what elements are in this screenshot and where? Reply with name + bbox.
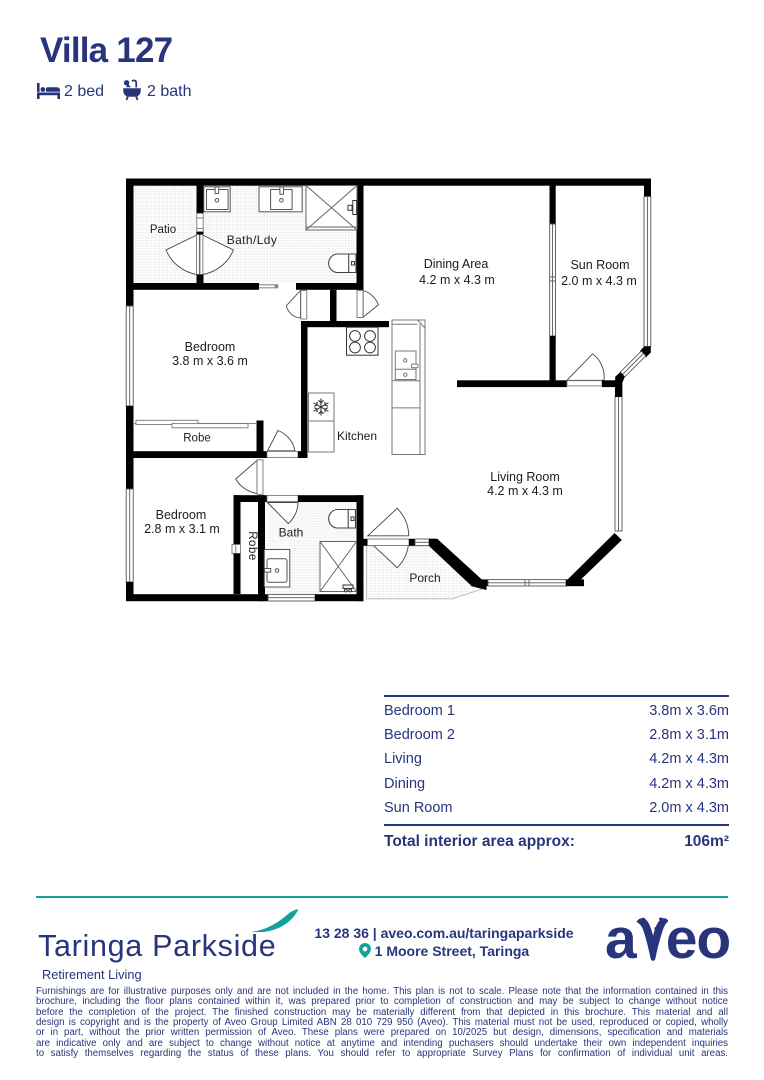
svg-text:Bedroom: Bedroom	[185, 340, 236, 354]
svg-text:Bath/Ldy: Bath/Ldy	[227, 233, 278, 247]
svg-text:Bath: Bath	[279, 526, 304, 540]
svg-text:Sun Room: Sun Room	[570, 258, 629, 272]
svg-text:Robe: Robe	[246, 531, 258, 561]
svg-text:Kitchen: Kitchen	[337, 429, 377, 443]
svg-text:Robe: Robe	[183, 433, 211, 445]
svg-text:4.2 m x 4.3 m: 4.2 m x 4.3 m	[487, 484, 563, 498]
svg-text:Patio: Patio	[150, 224, 176, 236]
svg-text:Bedroom: Bedroom	[156, 508, 207, 522]
svg-text:Porch: Porch	[409, 571, 440, 585]
svg-text:Dining Area: Dining Area	[424, 257, 489, 271]
svg-text:4.2 m x 4.3 m: 4.2 m x 4.3 m	[419, 273, 495, 287]
svg-text:2.8 m x 3.1 m: 2.8 m x 3.1 m	[144, 522, 220, 536]
svg-text:Living Room: Living Room	[490, 470, 559, 484]
svg-text:2.0 m x 4.3 m: 2.0 m x 4.3 m	[561, 274, 637, 288]
svg-text:3.8 m x 3.6 m: 3.8 m x 3.6 m	[172, 354, 248, 368]
